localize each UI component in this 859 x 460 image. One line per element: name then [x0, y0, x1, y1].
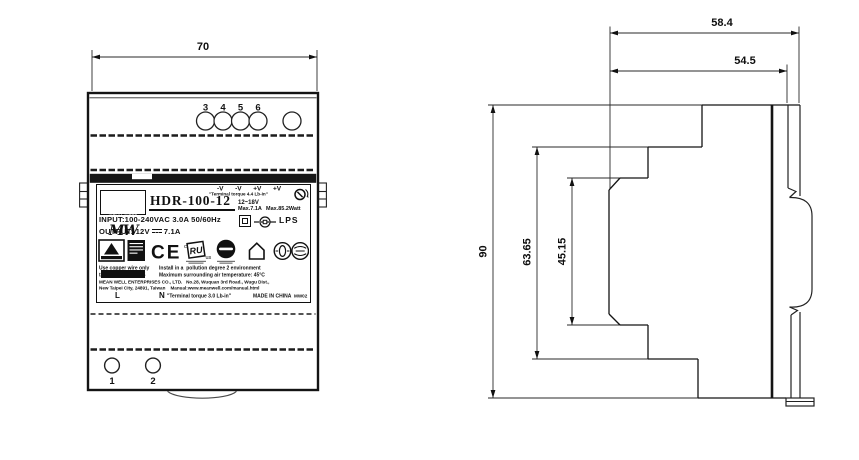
- height-overall-value: 90: [478, 245, 490, 257]
- warning-triangle-icon: [99, 240, 124, 261]
- din-release-tab: [168, 391, 237, 398]
- depth-case-dimension: 54.5: [610, 55, 787, 103]
- side-profile: [609, 105, 772, 398]
- circular-cert-icon: [292, 243, 309, 260]
- company-address-line2: New Taipei City, 24891, Taiwan Manual:ww…: [99, 286, 259, 291]
- line-terminal-l: L: [115, 292, 120, 300]
- s-mark-icon: [274, 243, 291, 260]
- height-mid-dimension: 63.65: [522, 147, 540, 359]
- company-address-line1: MEAN WELL ENTERPRISES CO., LTD. No.28, W…: [99, 280, 269, 285]
- technical-drawing: 70 3 4 5 6: [0, 0, 859, 460]
- din-clip-profile: [786, 105, 814, 406]
- band-notch: [132, 174, 152, 179]
- line-terminal-n: N: [159, 292, 165, 300]
- output-spec: OUTPUT: 12V7.1A: [99, 227, 181, 236]
- top-round-hole: [283, 112, 301, 130]
- ce-mark: CE: [151, 243, 181, 264]
- terminal-6-number: 6: [255, 103, 260, 114]
- depth-overall-dimension: 58.4: [610, 17, 799, 189]
- height-front-value: 45.15: [557, 238, 569, 266]
- terminal-torque-bottom: "Terminal torque 3.0 Lb-in": [167, 294, 231, 299]
- lps-marking: LPS: [279, 216, 299, 225]
- certification-icons: CE c RU us: [98, 238, 309, 264]
- torque-screw-icon: [293, 186, 309, 202]
- svg-text:us: us: [206, 255, 212, 261]
- dc-symbol: [152, 227, 162, 235]
- hazard-note-block: [128, 240, 146, 261]
- label-rev-code: MW02: [294, 294, 307, 299]
- fuse-icon: [254, 216, 276, 228]
- note-ta-cos: ta:45°C cos φ:0.45: [99, 273, 145, 278]
- input-spec: INPUT:100-240VAC 3.0A 50/60Hz: [99, 216, 221, 224]
- terminal-4-number: 4: [220, 103, 226, 114]
- ul-recognized-icon: c RU us: [184, 241, 212, 263]
- ul-listed-round-icon: [217, 240, 236, 264]
- height-front-dimension: 45.15: [557, 178, 575, 325]
- width-dim-value: 70: [197, 41, 209, 53]
- terminal-5-number: 5: [238, 103, 244, 114]
- note-pollution-degree: Install in a pollution degree 2 environm…: [159, 266, 261, 271]
- voltage-adjust-range: 12~18V: [238, 199, 259, 205]
- width-dimension: 70: [92, 41, 317, 91]
- note-copper-wire: Use copper wire only: [99, 266, 149, 271]
- terminal-3-number: 3: [203, 103, 208, 114]
- svg-text:RU: RU: [189, 245, 204, 257]
- height-overall-dimension: 90: [478, 105, 496, 398]
- height-mid-value: 63.65: [522, 238, 534, 266]
- terminal-torque-top: "Terminal torque 4.4 Lb-in": [209, 192, 268, 197]
- max-power: Max.85.2Watt: [266, 206, 301, 212]
- class2-insulation-icon: [239, 215, 251, 227]
- max-current: Max.7.1A: [238, 206, 262, 212]
- meanwell-logo: MW MEAN WELL: [100, 190, 146, 215]
- label-top-band: [90, 174, 316, 183]
- indoor-use-house-icon: [250, 243, 265, 259]
- terminal-1-number: 1: [109, 376, 115, 387]
- side-view-drawing: 58.4 54.5 90 63.65 45.15: [478, 17, 815, 406]
- note-surrounding-temp: Maximum surrounding air temperature: 45°…: [159, 273, 265, 278]
- terminal-2-number: 2: [150, 376, 155, 387]
- product-label: MW MEAN WELL HDR-100-12 -V -V +V +V "Ter…: [96, 184, 311, 303]
- made-in: MADE IN CHINA: [253, 294, 291, 299]
- depth-case-value: 54.5: [734, 55, 755, 67]
- depth-overall-value: 58.4: [711, 17, 733, 29]
